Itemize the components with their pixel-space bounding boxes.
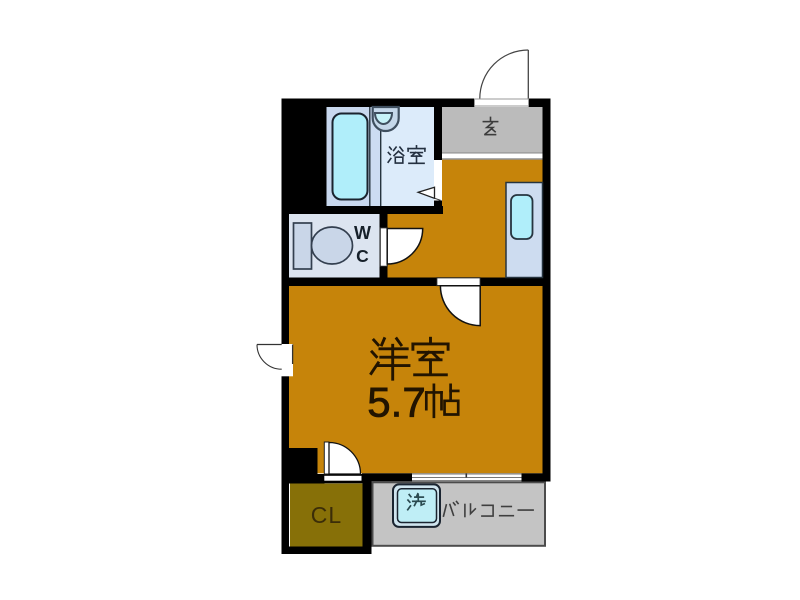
svg-text:C: C	[356, 246, 369, 266]
svg-text:CL: CL	[311, 502, 342, 528]
svg-text:5.7: 5.7	[367, 379, 425, 426]
svg-text:W: W	[354, 223, 371, 243]
